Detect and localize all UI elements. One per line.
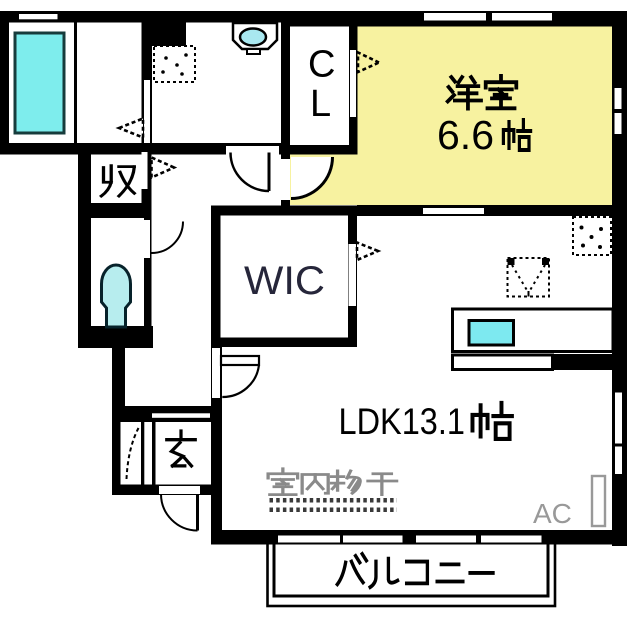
svg-text:C: C xyxy=(308,44,335,86)
svg-text:WIC: WIC xyxy=(244,259,325,303)
svg-text:AC: AC xyxy=(533,498,572,529)
svg-text:LDK13.1: LDK13.1 xyxy=(339,401,466,442)
svg-text:6.6: 6.6 xyxy=(437,112,494,158)
svg-text:L: L xyxy=(310,83,331,125)
